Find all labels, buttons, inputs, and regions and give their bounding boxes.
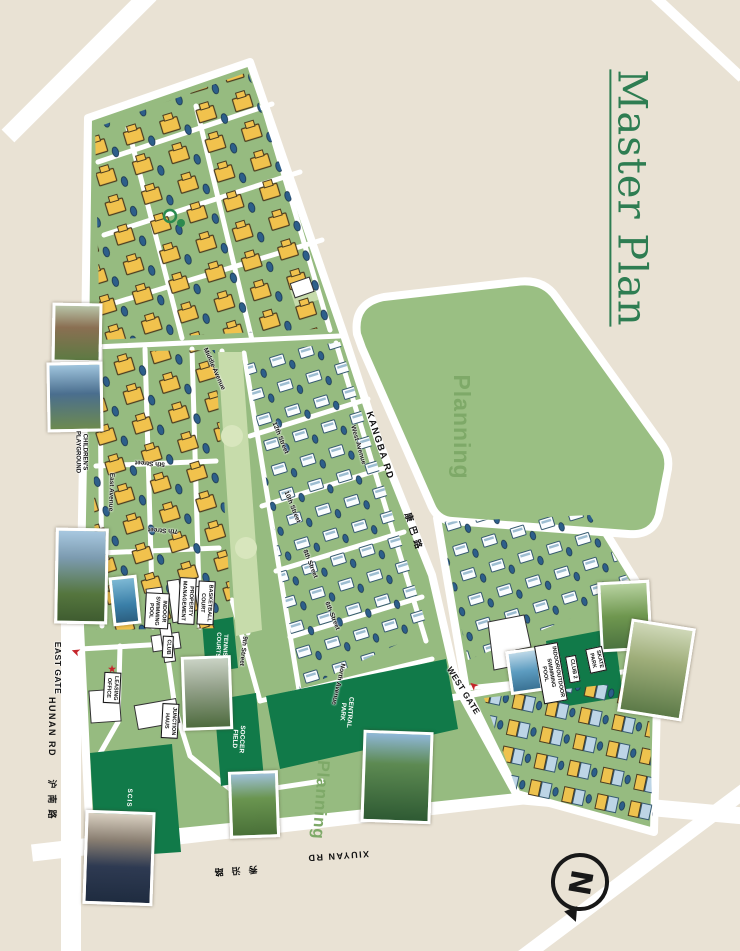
photo-thumbnail: [82, 810, 155, 906]
east-gate-label: EAST GATE: [52, 642, 62, 695]
planning-zone-label: Planning: [448, 374, 474, 479]
photo-thumbnail: [109, 575, 142, 627]
childrens-playground-label: CHILDREN'S PLAYGROUND: [74, 431, 87, 473]
central-park-label: CENTRAL PARK: [337, 696, 354, 728]
photo-thumbnail: [228, 770, 280, 839]
photo-thumbnail: [46, 362, 103, 433]
avenue-east-label: East Avenue: [107, 473, 116, 512]
north-letter: N: [561, 867, 600, 898]
photo-thumbnail: [54, 528, 109, 625]
tennis-courts-label: TENNIS COURTS: [214, 632, 229, 658]
photo-thumbnail: [360, 730, 433, 824]
basketball-court-label: BASKETBALL COURT: [196, 580, 215, 625]
photo-thumbnail: [51, 303, 102, 364]
leasing-office-label: LEASING OFFICE: [103, 672, 122, 704]
photo-thumbnail: [181, 655, 234, 731]
junction-haus-label: JUNCTION HAUS: [160, 703, 179, 739]
club-label: CLUB: [162, 636, 174, 659]
road-hunan-zh: 沪南路: [47, 779, 57, 824]
property-management-label: PROPERTY MANAGEMENT: [177, 577, 197, 625]
page-title: Master Plan: [609, 69, 654, 326]
master-plan-page: Master Plan EAST GATE ➤ WEST GATE ➤ HUNA…: [0, 0, 740, 951]
scis-label: SCIS: [125, 788, 133, 808]
indoor-swimming-pool-label: INDOOR SWIMMING POOL: [144, 592, 170, 630]
soccer-field-label: SOCCER FIELD: [230, 725, 246, 754]
road-hunan: HUNAN RD: [47, 697, 57, 757]
